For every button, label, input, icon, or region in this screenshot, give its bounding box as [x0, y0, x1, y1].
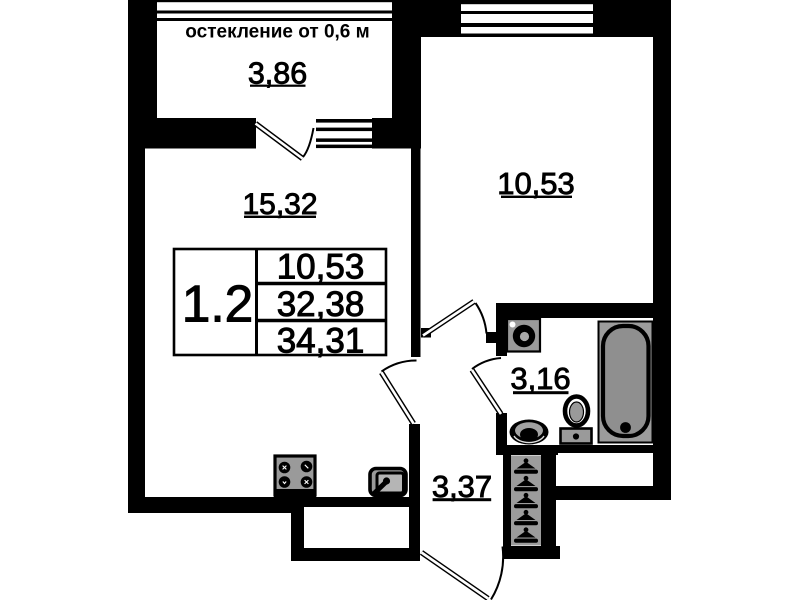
- svg-text:3,16: 3,16: [510, 361, 570, 396]
- svg-text:10,53: 10,53: [277, 248, 365, 287]
- svg-text:остекление от 0,6 м: остекление от 0,6 м: [185, 22, 369, 43]
- svg-text:32,38: 32,38: [277, 285, 365, 324]
- svg-text:34,31: 34,31: [277, 322, 365, 361]
- svg-text:1.2: 1.2: [182, 275, 254, 333]
